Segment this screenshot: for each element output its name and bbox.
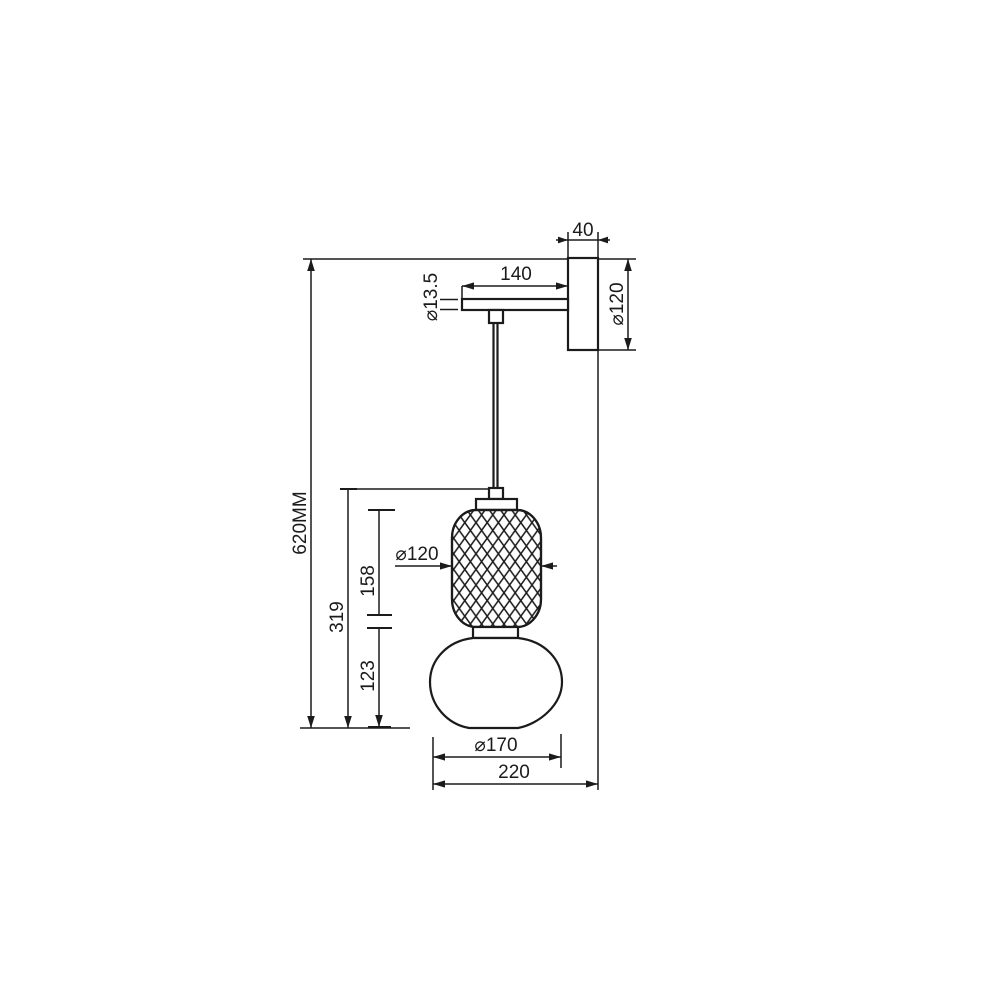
shade-neck (473, 627, 518, 638)
dim-lower-shade-diameter: ⌀170 (433, 734, 561, 790)
dim-label-lower-shade-diameter: ⌀170 (474, 735, 517, 756)
dim-label-mount-depth: 40 (572, 220, 593, 241)
arrowhead (375, 715, 383, 727)
dim-label-cord-diameter: ⌀13.5 (421, 273, 442, 321)
dim-shade-heights: 158 123 (358, 510, 395, 727)
dim-label-overall-projection: 220 (498, 762, 530, 783)
arrowhead (556, 282, 568, 289)
arrowhead (624, 259, 632, 271)
dim-label-mount-diameter: ⌀120 (607, 282, 628, 325)
arrowhead (462, 282, 474, 289)
dim-mount-depth: 40 (556, 220, 610, 258)
arrowhead (344, 716, 352, 728)
ferrule (489, 488, 503, 499)
arrowhead (624, 338, 632, 350)
upper-shade-diamond-pattern (452, 510, 541, 627)
arrowhead (558, 237, 568, 244)
mounting-arm (462, 299, 568, 310)
arrowhead (307, 716, 315, 728)
shade-cap (476, 499, 517, 510)
technical-drawing: 40 ⌀120 140 ⌀13.5 620MM 319 (0, 0, 1000, 1000)
arrowhead (549, 753, 561, 760)
arrowhead (433, 780, 445, 787)
lower-shade (430, 638, 562, 728)
dim-label-drop-height: 319 (327, 601, 348, 633)
dim-label-arm-length: 140 (500, 264, 532, 285)
dim-arm-length: 140 (462, 264, 568, 299)
dim-mount-diameter: ⌀120 (598, 259, 636, 350)
arrowhead (598, 237, 608, 244)
arrowhead (541, 562, 553, 569)
dim-label-upper-shade-height: 158 (358, 565, 379, 597)
dim-cord-diameter: ⌀13.5 (421, 273, 458, 321)
arrowhead (586, 780, 598, 787)
arrowhead (307, 259, 315, 271)
lamp-outline (430, 258, 598, 728)
arrowhead (433, 753, 445, 760)
dim-label-overall-height: 620MM (290, 491, 311, 554)
arrowhead (440, 562, 452, 569)
dim-label-lower-shade-height: 123 (358, 660, 379, 692)
cord-connector (489, 310, 503, 323)
dim-label-upper-shade-diameter: ⌀120 (395, 544, 438, 565)
wall-plate (568, 258, 598, 350)
